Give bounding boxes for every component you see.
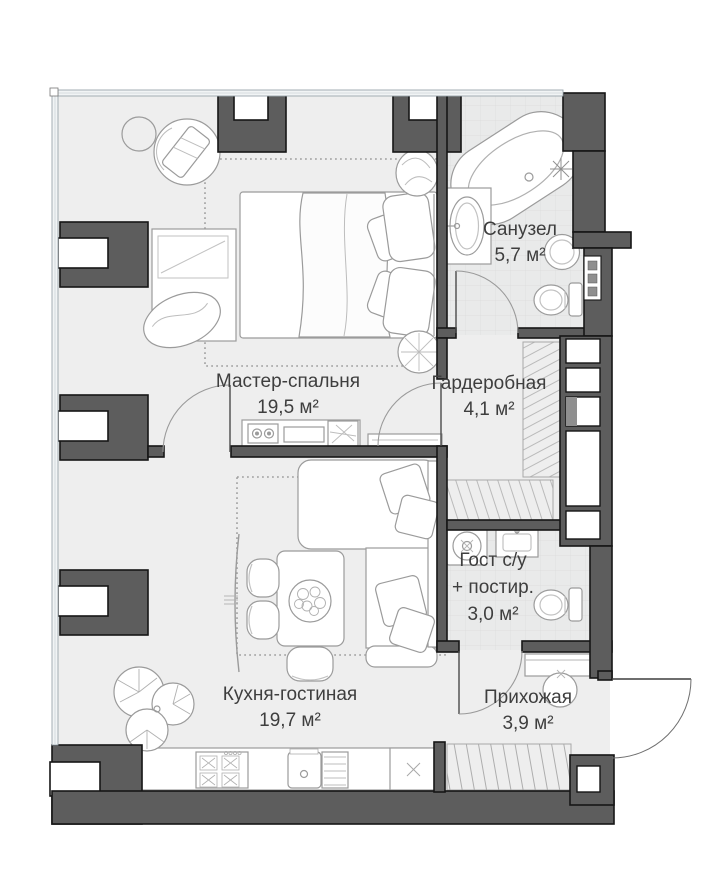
nightstand-plant-top bbox=[396, 150, 438, 196]
closet-hangers bbox=[447, 744, 571, 790]
entrance-door bbox=[612, 679, 691, 758]
floor-plan-drawing bbox=[0, 0, 724, 880]
kitchen-sink bbox=[288, 749, 348, 788]
room-name: Прихожая bbox=[484, 685, 572, 711]
electric-panel bbox=[584, 256, 601, 300]
fruit-bowl bbox=[289, 580, 331, 622]
room-area: 5,7 м² bbox=[483, 243, 557, 269]
room-label-wardrobe: Гардеробная 4,1 м² bbox=[432, 371, 547, 423]
floor-plan: Мастер-спальня 19,5 м² Санузел 5,7 м² Га… bbox=[0, 0, 724, 880]
nightstand-plant-bottom bbox=[398, 331, 440, 373]
room-area: 3,0 м² bbox=[452, 601, 534, 628]
room-area: 4,1 м² bbox=[432, 397, 547, 423]
toilet-guest bbox=[534, 588, 582, 621]
room-label-kitchen-living: Кухня-гостиная 19,7 м² bbox=[223, 682, 357, 734]
room-area: 19,5 м² bbox=[216, 395, 360, 421]
room-name: Санузел bbox=[483, 217, 557, 243]
room-label-bathroom: Санузел 5,7 м² bbox=[483, 217, 557, 269]
armchair bbox=[154, 119, 220, 185]
room-name: Мастер-спальня bbox=[216, 369, 360, 395]
room-label-hallway: Прихожая 3,9 м² bbox=[484, 685, 572, 737]
bed bbox=[240, 191, 437, 338]
dishwasher bbox=[390, 748, 438, 790]
dining-table bbox=[277, 551, 344, 646]
stove bbox=[196, 751, 248, 788]
room-label-master-bedroom: Мастер-спальня 19,5 м² bbox=[216, 369, 360, 421]
room-name: Гардеробная bbox=[432, 371, 547, 397]
wall-bottom bbox=[52, 791, 614, 824]
room-area: 19,7 м² bbox=[223, 708, 357, 734]
room-name: Кухня-гостиная bbox=[223, 682, 357, 708]
room-area: 3,9 м² bbox=[484, 711, 572, 737]
toilet-main bbox=[534, 283, 582, 316]
room-label-guest-wc: Гост с/у + постир. 3,0 м² bbox=[452, 547, 534, 628]
tub-faucet-icon bbox=[550, 158, 572, 180]
room-name-2: + постир. bbox=[452, 574, 534, 601]
room-name: Гост с/у bbox=[452, 547, 534, 574]
dresser-console bbox=[242, 420, 360, 447]
